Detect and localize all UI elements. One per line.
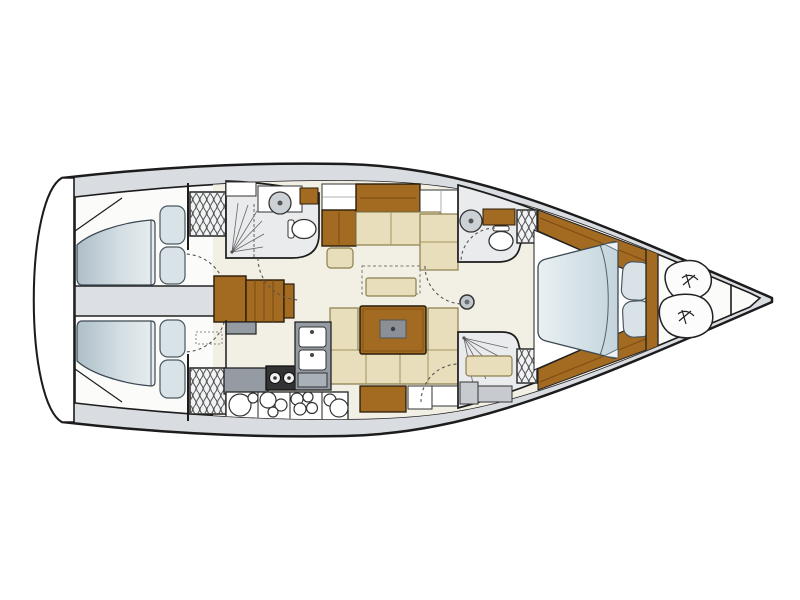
pillow xyxy=(160,247,185,284)
burner-center xyxy=(287,376,291,380)
pillow xyxy=(160,206,185,244)
faucet xyxy=(310,330,314,334)
toilet xyxy=(292,220,316,239)
nav-station xyxy=(322,184,356,268)
wood-counter xyxy=(483,209,515,225)
burner-center xyxy=(273,376,277,380)
sail-locker xyxy=(659,261,712,338)
pillow xyxy=(160,360,185,398)
nav-seat xyxy=(327,248,353,268)
mast-post-center xyxy=(465,300,470,305)
hanging-locker-clothes xyxy=(190,368,226,414)
folding-bench xyxy=(366,278,416,296)
hanging-locker-clothes xyxy=(190,192,226,236)
toilet xyxy=(489,232,513,251)
engine-hatch xyxy=(75,286,215,316)
step-cabinet xyxy=(478,386,512,402)
forward-bulkhead xyxy=(646,246,658,354)
sink-cabinet xyxy=(298,373,327,387)
stair-bottom-step xyxy=(226,322,256,334)
sink-basin xyxy=(299,327,326,347)
shower-drain xyxy=(462,336,465,339)
stair-top-step xyxy=(284,284,294,318)
table-inset-dot xyxy=(391,327,395,331)
aft-locker-a xyxy=(408,386,432,409)
wood-shelf xyxy=(300,188,318,204)
pillow xyxy=(160,320,185,357)
step-cabinet xyxy=(460,382,478,404)
settee-base-cabinet xyxy=(360,386,406,412)
head-cabinet xyxy=(226,182,256,196)
sink-drain xyxy=(278,201,283,206)
sink-drain xyxy=(469,219,474,224)
sail-bag xyxy=(659,294,712,338)
faucet xyxy=(310,353,314,357)
stair-treads xyxy=(246,280,284,322)
transom-platform xyxy=(34,178,74,422)
toilet-cistern xyxy=(493,226,509,231)
island-berth-mattress xyxy=(538,242,618,358)
galley-counter xyxy=(224,368,268,394)
yacht-floorplan-canvas xyxy=(0,0,800,600)
shower-bench xyxy=(466,356,512,376)
shower-drain xyxy=(230,250,233,253)
sink-basin xyxy=(299,350,326,370)
aft-locker-b xyxy=(432,386,458,406)
yacht-floorplan xyxy=(0,0,800,600)
forward-cabin xyxy=(534,210,658,390)
stair-landing xyxy=(214,276,246,322)
mast-post xyxy=(460,295,474,309)
